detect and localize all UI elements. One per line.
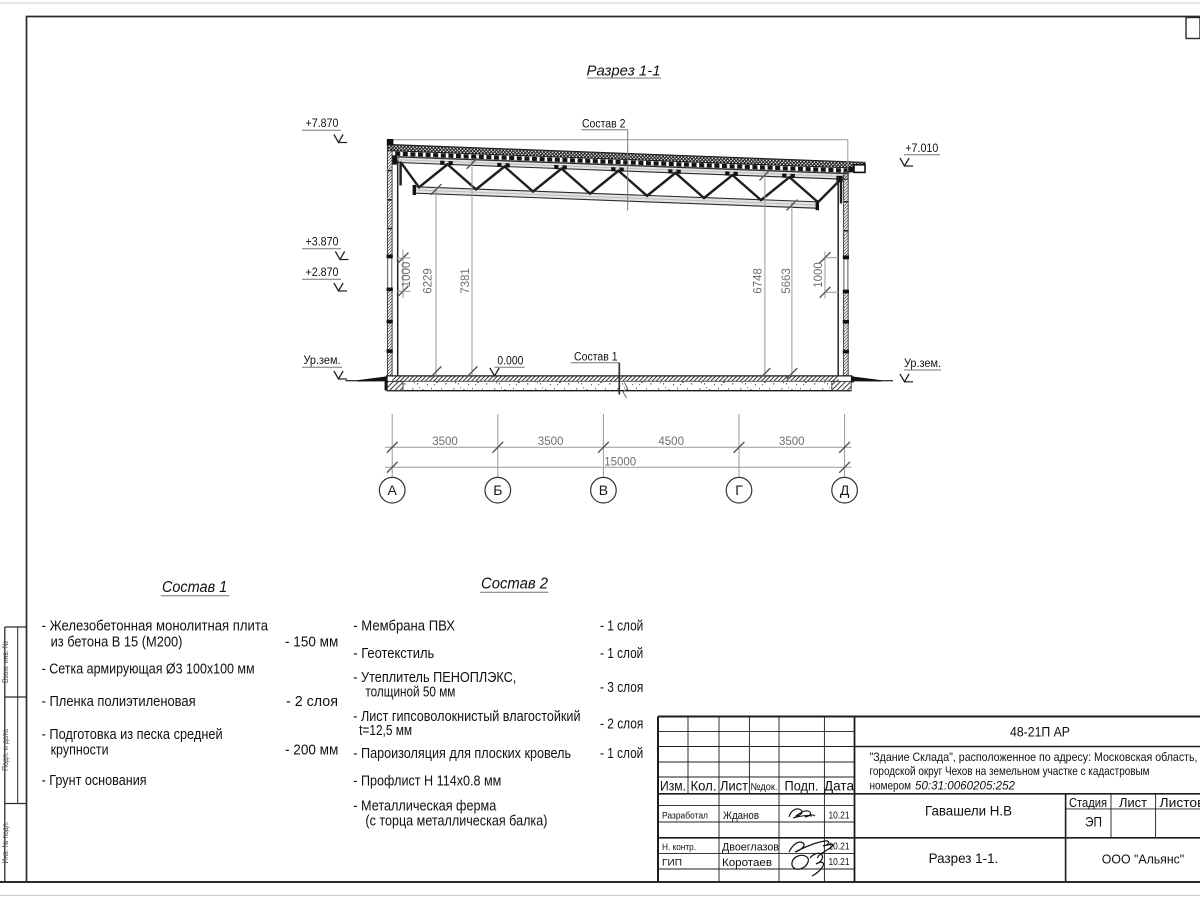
svg-text:номером: номером [870, 780, 912, 793]
svg-text:- 150 мм: - 150 мм [285, 635, 338, 651]
svg-text:- Металлическая ферма: - Металлическая ферма [353, 799, 497, 815]
svg-text:Ур.зем.: Ур.зем. [304, 355, 341, 367]
svg-text:Разработал: Разработал [662, 811, 708, 821]
svg-text:Коротаев: Коротаев [722, 857, 772, 869]
svg-text:крупности: крупности [51, 743, 109, 759]
svg-text:Д: Д [840, 482, 850, 498]
svg-text:Гавашели Н.В: Гавашели Н.В [925, 803, 1012, 819]
svg-text:6748: 6748 [753, 268, 765, 294]
svg-text:Состав 1: Состав 1 [162, 579, 227, 596]
svg-text:3500: 3500 [538, 436, 564, 448]
svg-text:Ур.зем.: Ур.зем. [904, 358, 941, 370]
svg-text:Жданов: Жданов [723, 810, 759, 822]
svg-text:- 1 слой: - 1 слой [600, 646, 643, 662]
svg-text:Б: Б [493, 482, 502, 498]
svg-text:Листов: Листов [1160, 795, 1200, 810]
svg-text:50:31:0060205:252: 50:31:0060205:252 [915, 779, 1015, 793]
svg-text:48-21П АР: 48-21П АР [1010, 725, 1070, 740]
svg-text:+3.870: +3.870 [306, 237, 339, 249]
svg-text:В: В [599, 482, 608, 498]
svg-text:- 200 мм: - 200 мм [285, 743, 338, 759]
svg-text:10.21: 10.21 [829, 811, 850, 822]
svg-text:- 2 слоя: - 2 слоя [600, 717, 643, 733]
svg-text:3500: 3500 [432, 436, 458, 448]
svg-text:Разрез 1-1.: Разрез 1-1. [929, 851, 999, 866]
svg-text:- Геотекстиль: - Геотекстиль [353, 646, 434, 662]
svg-text:- Сетка армирующая Ø3 100х100: - Сетка армирующая Ø3 100х100 мм [42, 662, 255, 678]
svg-text:№док.: №док. [751, 782, 778, 793]
svg-text:- 3 слоя: - 3 слоя [600, 680, 643, 696]
svg-text:Дата: Дата [824, 778, 854, 794]
svg-text:- Пленка полиэтиленовая: - Пленка полиэтиленовая [42, 694, 196, 710]
svg-text:- 1 слой: - 1 слой [600, 746, 643, 762]
svg-text:- Профлист Н 114х0.8 мм: - Профлист Н 114х0.8 мм [353, 774, 501, 790]
svg-text:Подп. и дата: Подп. и дата [0, 729, 10, 771]
svg-text:- Пароизоляция для плоских кро: - Пароизоляция для плоских кровель [353, 746, 571, 762]
svg-text:толщиной 50 мм: толщиной 50 мм [365, 685, 455, 701]
svg-text:+2.870: +2.870 [306, 267, 339, 279]
svg-text:- 1 слой: - 1 слой [600, 619, 643, 635]
svg-text:Н. контр.: Н. контр. [662, 842, 696, 852]
svg-text:4500: 4500 [658, 436, 684, 448]
svg-text:ООО "Альянс": ООО "Альянс" [1102, 852, 1185, 867]
svg-text:10.21: 10.21 [829, 857, 850, 868]
svg-text:Лист: Лист [720, 778, 749, 794]
svg-text:Изм.: Изм. [660, 778, 686, 794]
svg-text:3500: 3500 [779, 436, 805, 448]
svg-text:ГИП: ГИП [662, 858, 682, 868]
svg-text:Стадия: Стадия [1069, 795, 1107, 810]
svg-text:5663: 5663 [781, 268, 793, 294]
svg-text:Состав 1: Состав 1 [574, 351, 618, 363]
svg-text:Разрез 1-1: Разрез 1-1 [587, 63, 661, 80]
svg-text:+7.010: +7.010 [905, 143, 938, 155]
svg-text:- 2 слоя: - 2 слоя [286, 694, 338, 710]
svg-text:- Грунт основания: - Грунт основания [42, 773, 147, 789]
svg-text:городской округ Чехов на земел: городской округ Чехов на земельном участ… [870, 765, 1150, 778]
svg-text:ЭП: ЭП [1085, 815, 1102, 830]
svg-text:Подп.: Подп. [785, 778, 819, 794]
svg-text:15000: 15000 [604, 457, 636, 469]
svg-text:из бетона В 15 (М200): из бетона В 15 (М200) [51, 635, 183, 651]
svg-text:1000: 1000 [401, 262, 413, 288]
svg-text:Кол.: Кол. [691, 778, 717, 794]
svg-text:Взам. инв. №: Взам. инв. № [0, 641, 10, 683]
svg-text:- Мембрана ПВХ: - Мембрана ПВХ [353, 619, 455, 635]
svg-text:Состав 2: Состав 2 [582, 119, 626, 131]
svg-text:Лист: Лист [1119, 795, 1147, 810]
svg-text:- Подготовка из песка средней: - Подготовка из песка средней [42, 727, 223, 743]
svg-text:7381: 7381 [460, 268, 472, 294]
svg-text:+7.870: +7.870 [306, 118, 339, 130]
svg-text:Г: Г [735, 482, 743, 498]
svg-text:t=12,5 мм: t=12,5 мм [359, 723, 412, 739]
svg-text:0.000: 0.000 [497, 356, 523, 368]
svg-text:- Железобетонная монолитная п: - Железобетонная монолитная плита [42, 619, 269, 635]
svg-text:1000: 1000 [813, 262, 825, 288]
svg-text:Инв. № подл.: Инв. № подл. [0, 822, 10, 864]
svg-text:Двоеглазов: Двоеглазов [722, 842, 779, 854]
svg-text:(с торца металлическая балка): (с торца металлическая балка) [365, 814, 547, 830]
svg-text:А: А [388, 482, 398, 498]
svg-text:Состав 2: Состав 2 [481, 576, 548, 593]
svg-text:6229: 6229 [423, 268, 435, 294]
svg-text:"Здание Склада", расположенное: "Здание Склада", расположенное по адресу… [870, 751, 1198, 764]
